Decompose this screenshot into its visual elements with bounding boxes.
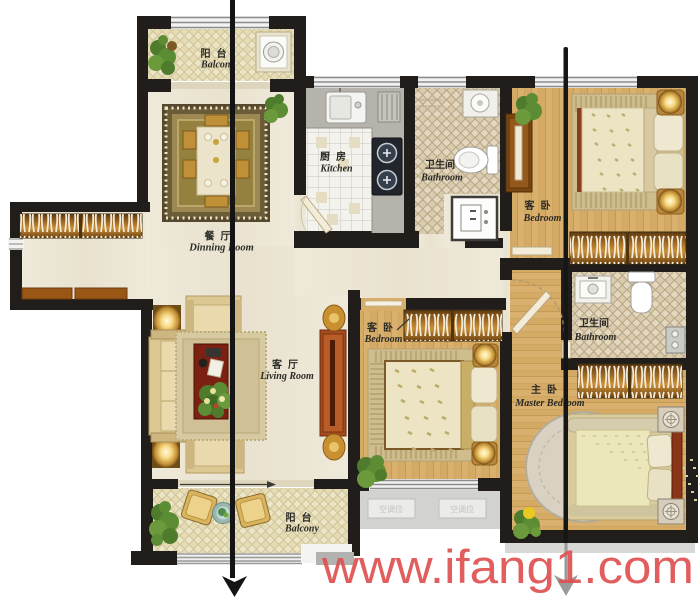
svg-text:厨房: 厨房 [320,150,352,163]
svg-text:Bedroom: Bedroom [364,334,403,345]
svg-text:空调位: 空调位 [450,504,474,514]
svg-text:Bathroom: Bathroom [420,173,463,184]
svg-text:空调位: 空调位 [379,504,403,514]
svg-text:主卧: 主卧 [531,383,563,396]
svg-text:Master Bedroom: Master Bedroom [514,398,584,409]
svg-text:阳台: 阳台 [201,47,233,60]
svg-text:卫生间: 卫生间 [579,317,609,330]
svg-text:阳台: 阳台 [286,511,318,524]
svg-text:客厅: 客厅 [271,358,304,371]
svg-text:卫生间: 卫生间 [425,158,455,171]
svg-text:Kitchen: Kitchen [319,164,353,175]
svg-text:Living Room: Living Room [259,371,314,382]
svg-text:www.ifang1.com: www.ifang1.com [321,540,694,593]
svg-text:客卧: 客卧 [524,199,557,212]
svg-text:Bedroom: Bedroom [523,213,562,224]
svg-text:Balcony: Balcony [284,524,319,535]
svg-text:Dinning Room: Dinning Room [188,243,253,254]
svg-text:Bathroom: Bathroom [574,332,617,343]
svg-text:客卧: 客卧 [366,321,399,334]
